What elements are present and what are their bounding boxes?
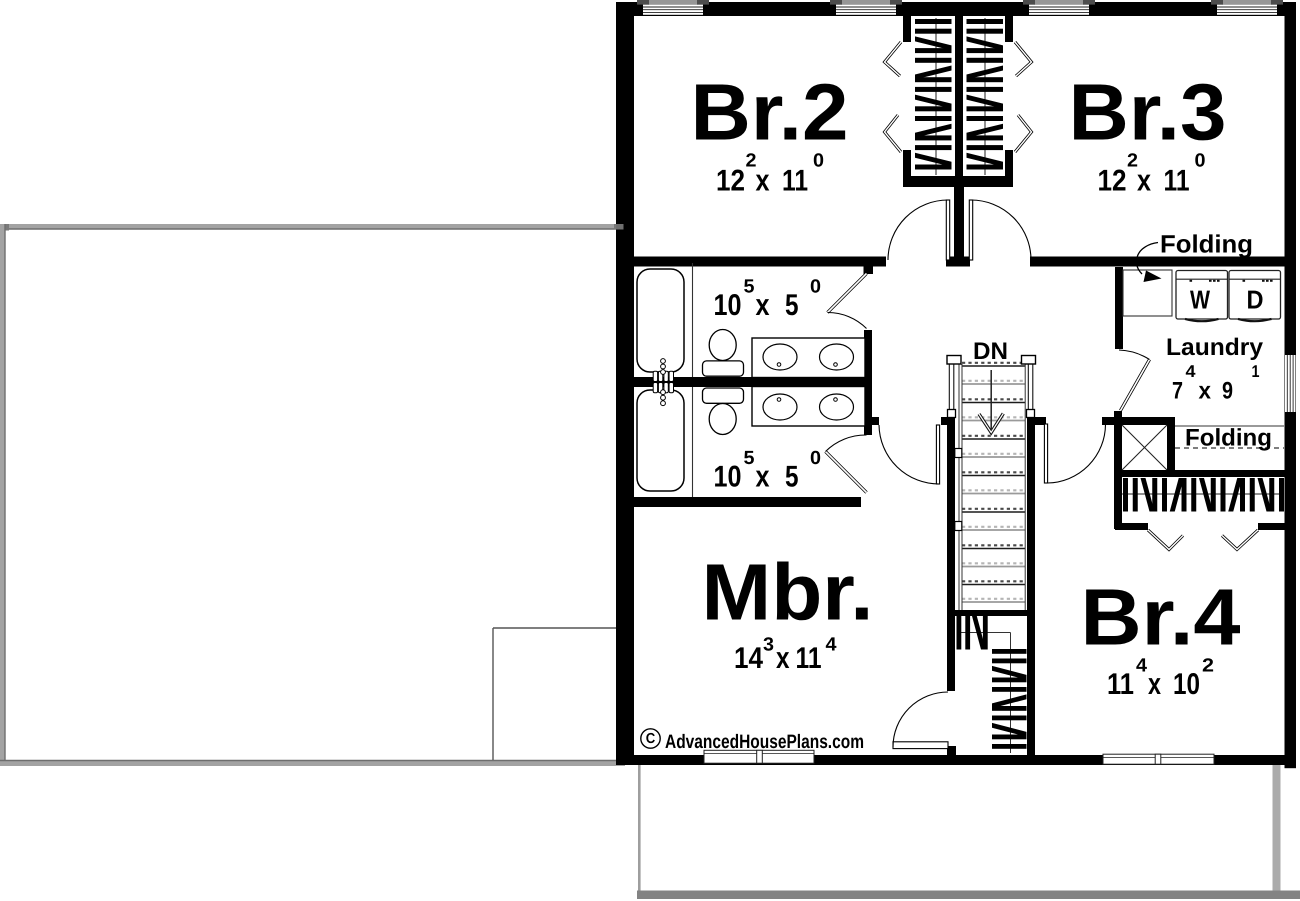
svg-text:Br.4: Br.4 <box>1081 573 1242 662</box>
svg-text:x: x <box>1148 668 1161 701</box>
svg-text:D: D <box>1247 285 1264 315</box>
svg-text:4: 4 <box>1186 362 1197 381</box>
svg-text:Folding: Folding <box>1160 231 1253 259</box>
svg-text:x: x <box>756 461 770 494</box>
svg-text:Folding: Folding <box>1185 425 1272 452</box>
svg-text:10: 10 <box>714 289 742 322</box>
svg-text:DN: DN <box>973 338 1008 365</box>
svg-text:5: 5 <box>785 289 799 322</box>
svg-text:1: 1 <box>1252 362 1260 381</box>
svg-text:4: 4 <box>1136 656 1147 677</box>
svg-text:10: 10 <box>714 461 742 494</box>
svg-text:Mbr.: Mbr. <box>702 548 874 637</box>
svg-text:7: 7 <box>1172 378 1183 405</box>
svg-text:0: 0 <box>810 277 821 298</box>
svg-text:11: 11 <box>1107 668 1134 701</box>
svg-text:14: 14 <box>734 642 763 675</box>
svg-text:11: 11 <box>1164 165 1190 198</box>
svg-text:0: 0 <box>813 151 824 172</box>
svg-text:5: 5 <box>744 277 755 298</box>
svg-text:3: 3 <box>763 635 774 656</box>
svg-text:W: W <box>1190 285 1210 315</box>
svg-text:x: x <box>756 165 770 198</box>
svg-text:0: 0 <box>1195 151 1206 172</box>
svg-text:0: 0 <box>810 448 821 469</box>
svg-text:9: 9 <box>1222 378 1233 405</box>
svg-text:Br.2: Br.2 <box>691 68 849 157</box>
svg-text:C: C <box>646 731 656 747</box>
svg-text:AdvancedHousePlans.com: AdvancedHousePlans.com <box>665 731 864 753</box>
svg-text:10: 10 <box>1173 668 1200 701</box>
svg-text:Laundry: Laundry <box>1166 334 1264 361</box>
svg-text:Br.3: Br.3 <box>1069 68 1227 157</box>
svg-text:x: x <box>756 289 770 322</box>
svg-text:11: 11 <box>782 165 808 198</box>
svg-text:x: x <box>1199 378 1212 405</box>
svg-text:x: x <box>1137 165 1151 198</box>
svg-text:x: x <box>776 642 790 675</box>
svg-text:2: 2 <box>1202 656 1214 677</box>
svg-text:12: 12 <box>1098 165 1127 198</box>
svg-text:5: 5 <box>785 461 799 494</box>
svg-text:11: 11 <box>796 642 822 675</box>
svg-text:12: 12 <box>716 165 745 198</box>
svg-text:5: 5 <box>744 448 755 469</box>
svg-text:4: 4 <box>826 635 837 656</box>
